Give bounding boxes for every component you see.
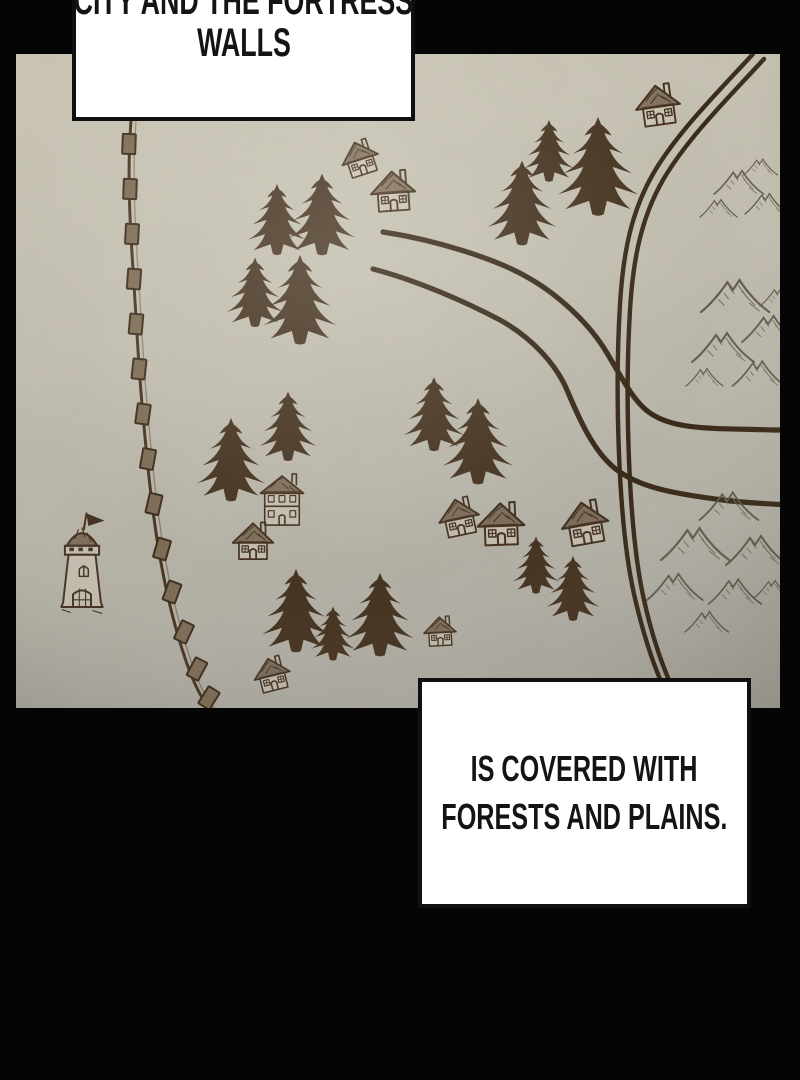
caption-bottom-line-2: FORESTS AND PLAINS. (441, 793, 727, 841)
caption-bottom-line-1: IS COVERED WITH (471, 745, 698, 793)
parchment-map (16, 54, 780, 708)
caption-box-top: CITY AND THE FORTRESS WALLS (72, 0, 415, 121)
comic-panel: CITY AND THE FORTRESS WALLS IS COVERED W… (0, 0, 800, 1080)
map-illustration (16, 54, 780, 708)
caption-top-line-2: WALLS (197, 22, 291, 64)
caption-box-bottom: IS COVERED WITH FORESTS AND PLAINS. (418, 678, 751, 908)
caption-top-line-1: CITY AND THE FORTRESS (74, 0, 413, 22)
